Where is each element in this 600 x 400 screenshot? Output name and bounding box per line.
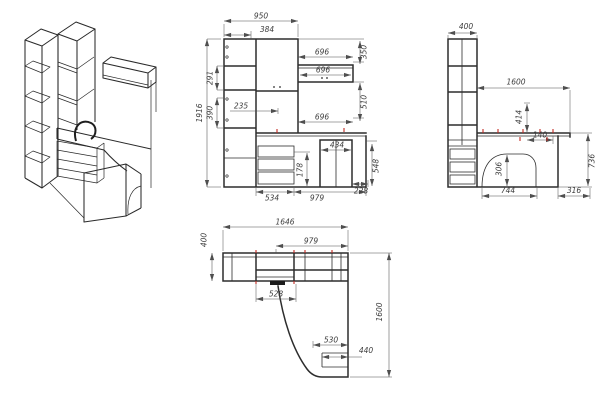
label-front-696-mid: 696: [316, 66, 331, 75]
plan-structure-thick: [223, 253, 348, 377]
iso-center-column-shelves: [58, 57, 94, 125]
furniture-drawing: 950 384 1916 291 390 235 696 696 696 350…: [0, 0, 600, 400]
front-view: 950 384 1916 291 390 235 696 696 696 350…: [195, 12, 381, 203]
blueprint-page: 950 384 1916 291 390 235 696 696 696 350…: [0, 0, 600, 400]
label-front-390: 390: [206, 106, 215, 121]
label-side-306: 306: [495, 162, 504, 177]
label-plan-528: 528: [269, 290, 284, 299]
label-plan-1600: 1600: [375, 302, 384, 321]
label-front-350: 350: [360, 45, 369, 60]
iso-wall-shelf-inner: [103, 75, 156, 188]
label-side-744: 744: [501, 186, 516, 195]
label-side-140: 140: [533, 131, 548, 140]
label-front-979: 979: [310, 194, 325, 203]
label-side-1600: 1600: [506, 78, 525, 87]
label-side-316: 316: [567, 186, 582, 195]
label-front-235: 235: [234, 102, 249, 111]
label-side-414: 414: [515, 110, 524, 125]
label-front-510: 510: [360, 95, 369, 110]
label-plan-979: 979: [304, 237, 319, 246]
label-front-434: 434: [330, 141, 345, 150]
label-front-1916: 1916: [195, 103, 204, 122]
side-view: 400 1600 414 140 306 736 744 316: [448, 22, 597, 199]
isometric-view: [25, 22, 156, 222]
label-front-696-top: 696: [315, 48, 330, 57]
side-drawer-1: [450, 149, 475, 159]
label-front-548: 548: [372, 159, 381, 174]
label-front-696-low: 696: [315, 113, 330, 122]
label-side-736: 736: [588, 154, 597, 169]
label-front-950: 950: [254, 12, 269, 21]
side-leg-cutout-arch: [482, 154, 536, 187]
side-drawer-2: [450, 162, 475, 172]
iso-pedestal-cutout-curve: [128, 186, 141, 214]
label-front-178: 178: [296, 163, 305, 178]
iso-support-pedestal: [84, 164, 141, 222]
label-side-400: 400: [459, 22, 474, 31]
label-plan-1646: 1646: [275, 218, 294, 227]
label-front-228: 228: [354, 187, 369, 196]
iso-left-unit-shelves: [25, 61, 50, 163]
label-front-291: 291: [206, 71, 215, 85]
side-structure-thick: [448, 39, 570, 187]
label-plan-400: 400: [200, 233, 209, 248]
iso-cable-swoosh: [75, 122, 96, 141]
iso-wall-shelf-box: [103, 57, 156, 88]
label-front-384: 384: [260, 25, 275, 34]
iso-left-shelving-unit: [25, 29, 58, 188]
front-drawer-2: [258, 159, 294, 170]
label-front-534: 534: [265, 194, 280, 203]
label-plan-440: 440: [359, 346, 374, 355]
side-drawer-3: [450, 175, 475, 184]
front-drawer-1: [258, 146, 294, 157]
label-plan-530: 530: [324, 336, 339, 345]
front-drawer-3: [258, 172, 294, 184]
plan-connector-block: [270, 281, 285, 285]
plan-view: 1646 979 400 528 530 440 1600: [200, 218, 393, 378]
